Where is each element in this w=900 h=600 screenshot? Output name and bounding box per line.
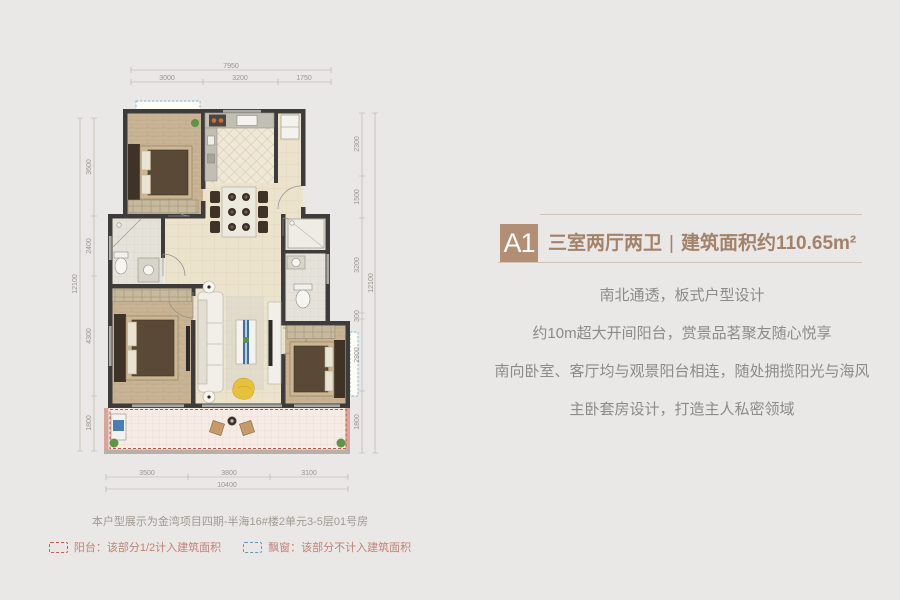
bean-bag-icon bbox=[233, 378, 255, 399]
sink-icon bbox=[287, 256, 305, 269]
plan-caption: 本户型展示为金湾项目四期-半海16#楼2单元3-5层01号房 bbox=[65, 513, 395, 529]
dim-bottom: 3100 bbox=[301, 470, 317, 477]
ac-unit-icon bbox=[111, 414, 126, 440]
wardrobe-icon bbox=[287, 326, 335, 339]
dim-right: 1500 bbox=[354, 189, 361, 205]
legend-bay-window-label: 飘窗：该部分不计入建筑面积 bbox=[268, 539, 411, 555]
window-icon bbox=[223, 110, 261, 113]
dim-right: 300 bbox=[354, 310, 361, 322]
dim-left: 2400 bbox=[86, 238, 93, 254]
plant-icon bbox=[110, 439, 119, 448]
title-divider-line bbox=[540, 214, 862, 215]
feature-line: 约10m超大开间阳台，赏景品茗聚友随心悦享 bbox=[470, 315, 894, 353]
balcony-floor bbox=[108, 408, 348, 452]
unit-title: 三室两厅两卫|建筑面积约110.65m² bbox=[548, 224, 856, 262]
unit-badge: A1 bbox=[500, 224, 538, 262]
balcony-swatch-icon bbox=[49, 542, 68, 553]
plant-icon bbox=[337, 439, 346, 448]
title-underline bbox=[498, 262, 862, 263]
sliding-door-icon bbox=[202, 404, 282, 407]
feature-line: 南向卧室、客厅均与观景阳台相连，随处拥揽阳光与海风 bbox=[470, 353, 894, 391]
dim-bottom-total: 10400 bbox=[217, 482, 237, 489]
bay-window-swatch-icon bbox=[243, 542, 262, 553]
fridge-icon bbox=[281, 115, 299, 139]
legend-balcony-label: 阳台：该部分1/2计入建筑面积 bbox=[74, 539, 221, 555]
bay-window-icon bbox=[136, 101, 200, 110]
sliding-door-icon bbox=[294, 404, 340, 407]
tv-cabinet-icon bbox=[268, 302, 281, 384]
bay-window-icon bbox=[350, 332, 358, 396]
coffee-table-icon bbox=[236, 320, 256, 364]
master-bed-icon bbox=[114, 314, 178, 382]
dim-top: 3000 bbox=[159, 75, 175, 82]
bed-icon bbox=[128, 144, 192, 201]
unit-area-label: 建筑面积约110.65m² bbox=[681, 233, 856, 254]
dim-left: 4300 bbox=[86, 328, 93, 344]
dining-table-icon bbox=[222, 187, 256, 237]
dim-top-total: 7950 bbox=[223, 63, 239, 70]
dim-left: 1800 bbox=[86, 415, 93, 431]
sofa-icon bbox=[198, 281, 223, 403]
dim-left-total: 12100 bbox=[72, 274, 79, 294]
dresser-icon bbox=[128, 200, 198, 213]
window-icon bbox=[109, 326, 112, 366]
dim-right: 2800 bbox=[354, 347, 361, 363]
plan-legend: 阳台：该部分1/2计入建筑面积 飘窗：该部分不计入建筑面积 bbox=[40, 539, 420, 555]
dim-bottom: 3500 bbox=[139, 470, 155, 477]
title-separator: | bbox=[669, 233, 674, 254]
legend-item-bay-window: 飘窗：该部分不计入建筑面积 bbox=[243, 539, 411, 555]
tv-icon bbox=[186, 326, 190, 371]
unit-layout-label: 三室两厅两卫 bbox=[548, 233, 662, 254]
dim-top: 1750 bbox=[296, 75, 312, 82]
window-icon bbox=[326, 254, 329, 284]
toilet-icon bbox=[114, 252, 128, 274]
dim-top: 3200 bbox=[232, 75, 248, 82]
feature-line: 主卧套房设计，打造主人私密领域 bbox=[470, 391, 894, 429]
dim-bottom: 3800 bbox=[221, 470, 237, 477]
dim-right: 1800 bbox=[354, 414, 361, 430]
shower-icon bbox=[288, 219, 324, 248]
legend-item-balcony: 阳台：该部分1/2计入建筑面积 bbox=[49, 539, 221, 555]
hallway-floor bbox=[165, 218, 205, 288]
dim-right: 3200 bbox=[354, 257, 361, 273]
floor-plan: 7950 3000 3200 1750 3500 3800 3100 10400… bbox=[60, 58, 400, 508]
plant-icon bbox=[191, 119, 199, 127]
feature-line: 南北通透，板式户型设计 bbox=[470, 277, 894, 315]
wardrobe-icon bbox=[113, 289, 192, 302]
window-icon bbox=[109, 236, 112, 260]
floorplan-page: 7950 3000 3200 1750 3500 3800 3100 10400… bbox=[0, 0, 900, 600]
dim-right-total: 12100 bbox=[368, 273, 375, 293]
dim-right: 2300 bbox=[354, 136, 361, 152]
sink-icon bbox=[138, 258, 159, 282]
sliding-door-icon bbox=[132, 404, 184, 407]
dim-left: 3600 bbox=[86, 159, 93, 175]
feature-list: 南北通透，板式户型设计 约10m超大开间阳台，赏景品茗聚友随心悦享 南向卧室、客… bbox=[470, 277, 894, 429]
bed-icon bbox=[290, 340, 345, 398]
